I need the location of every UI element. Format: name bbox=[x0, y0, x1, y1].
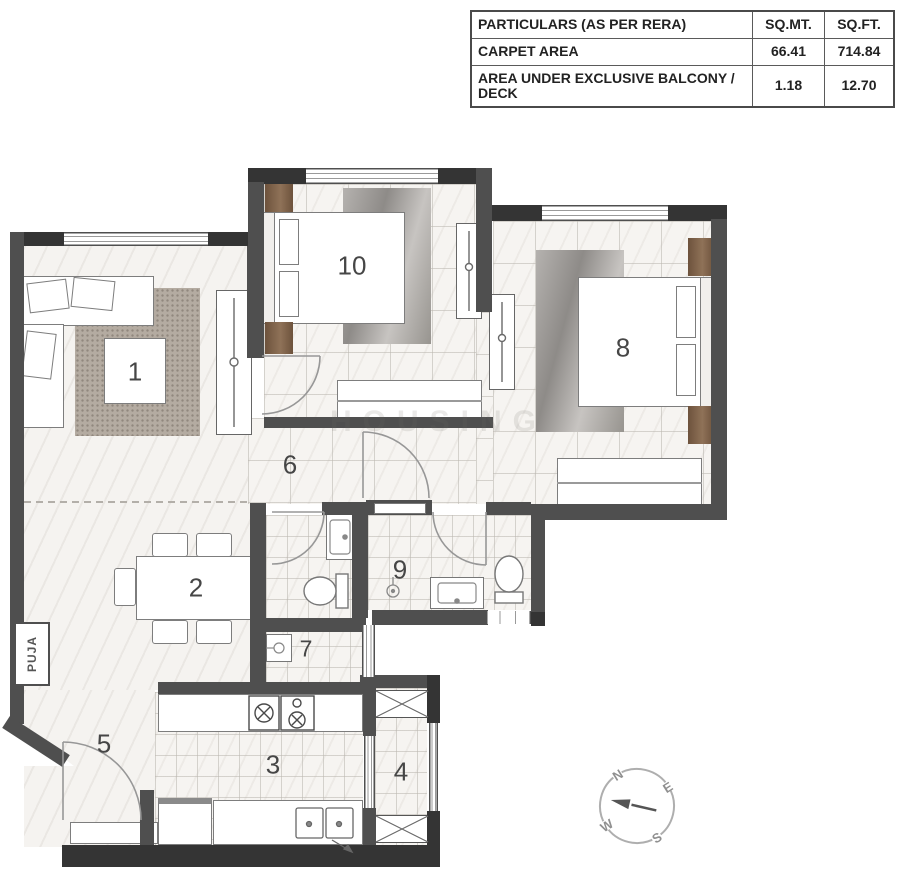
shower-niche bbox=[374, 503, 426, 514]
wall bbox=[372, 610, 488, 625]
wall bbox=[427, 811, 440, 855]
window-wash-area bbox=[362, 625, 375, 677]
wall bbox=[140, 790, 154, 845]
window-bedroom-8 bbox=[542, 205, 668, 221]
wall bbox=[250, 503, 266, 690]
room-label-2: 2 bbox=[189, 573, 203, 604]
kitchen-counter-bottom bbox=[213, 800, 363, 845]
wall bbox=[363, 808, 376, 845]
utility-duct-box bbox=[375, 815, 429, 843]
window-living bbox=[64, 232, 210, 246]
floor-plan-page: PARTICULARS (AS PER RERA) SQ.MT. SQ.FT. … bbox=[0, 0, 897, 870]
wall bbox=[531, 504, 545, 614]
bench-divider bbox=[337, 400, 482, 402]
watermark: HOUSING bbox=[330, 405, 547, 439]
wall bbox=[248, 182, 264, 246]
dresser-divider bbox=[557, 482, 702, 484]
wall bbox=[352, 515, 368, 618]
compass: N E S W bbox=[578, 747, 695, 866]
room-label-9: 9 bbox=[393, 555, 407, 586]
wall bbox=[247, 246, 264, 358]
kitchen-counter-top bbox=[158, 694, 363, 732]
wall bbox=[322, 502, 366, 515]
wall bbox=[158, 682, 363, 694]
room-label-7: 7 bbox=[300, 636, 313, 663]
wardrobe-bedroom-8 bbox=[489, 294, 515, 390]
sofa-cushion bbox=[71, 277, 116, 311]
utility-duct-box bbox=[375, 690, 429, 718]
wall-bottom bbox=[62, 845, 440, 867]
sofa-cushion bbox=[26, 279, 69, 314]
dining-chair bbox=[196, 533, 232, 557]
wall bbox=[531, 612, 545, 626]
compass-south: S bbox=[649, 829, 665, 846]
compass-east: E bbox=[660, 779, 676, 796]
floor-plan: N E S W 1 2 3 4 5 6 7 8 9 10 PUJA HOUSIN… bbox=[0, 0, 897, 870]
dining-chair bbox=[196, 620, 232, 644]
window-bathroom-vent bbox=[486, 611, 531, 624]
wall bbox=[476, 168, 492, 312]
compass-west: W bbox=[598, 816, 617, 836]
room-label-10: 10 bbox=[338, 251, 367, 282]
wall bbox=[427, 675, 440, 723]
dining-chair bbox=[114, 568, 136, 606]
dining-chair bbox=[152, 620, 188, 644]
window-bedroom-10 bbox=[306, 168, 438, 184]
nightstand-wood bbox=[265, 322, 293, 354]
wall bbox=[266, 618, 366, 632]
wall bbox=[363, 688, 376, 736]
bed-10-headboard bbox=[263, 212, 275, 324]
puja-niche: PUJA bbox=[14, 622, 50, 686]
bed-10-pillow bbox=[279, 271, 299, 317]
nightstand-wood bbox=[265, 182, 293, 212]
wall bbox=[486, 502, 531, 515]
wall-right bbox=[711, 219, 727, 520]
window-utility bbox=[429, 723, 438, 811]
room-label-3: 3 bbox=[266, 750, 280, 781]
wall bbox=[492, 205, 542, 221]
bed-10-pillow bbox=[279, 219, 299, 265]
bed-8-pillow bbox=[676, 344, 696, 396]
dining-chair bbox=[152, 533, 188, 557]
wall bbox=[545, 504, 711, 520]
room-label-4: 4 bbox=[394, 757, 408, 788]
room-label-5: 5 bbox=[97, 729, 111, 760]
room-label-1: 1 bbox=[128, 357, 142, 388]
fridge bbox=[158, 798, 212, 845]
room-label-8: 8 bbox=[616, 333, 630, 364]
window-kitchen-utility bbox=[364, 736, 375, 808]
washbasin-bathroom-9 bbox=[430, 577, 484, 609]
puja-label: PUJA bbox=[25, 636, 39, 672]
washbasin-wash-area-7 bbox=[266, 634, 292, 662]
sofa-cushion bbox=[21, 330, 56, 379]
room-label-6: 6 bbox=[283, 450, 297, 481]
compass-north: N bbox=[610, 766, 626, 784]
bed-8-pillow bbox=[676, 286, 696, 338]
